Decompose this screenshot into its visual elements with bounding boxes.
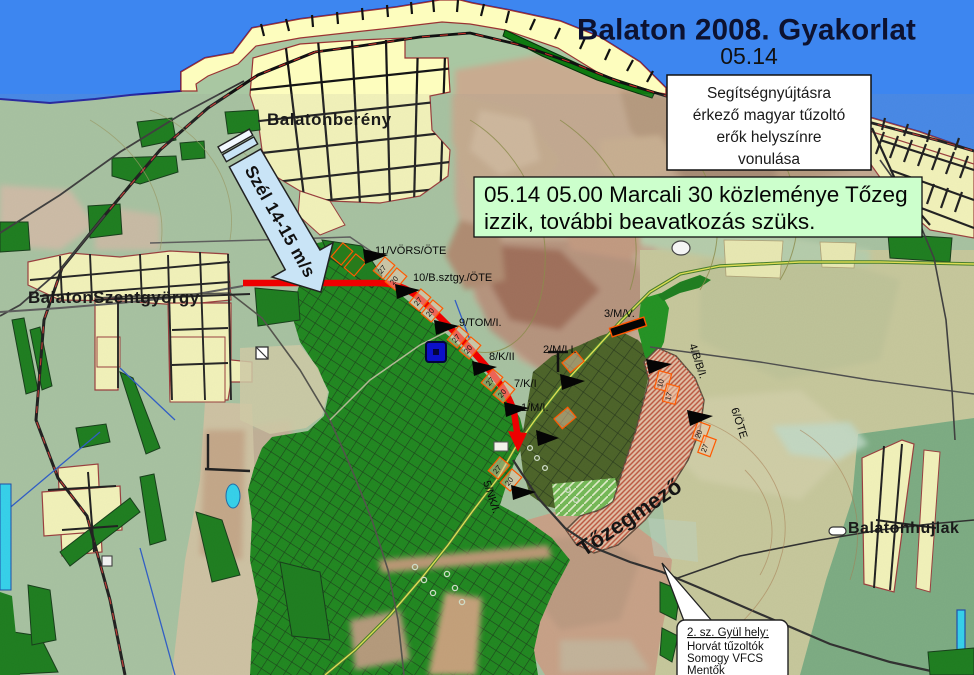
svg-text:Horvát tűzoltók: Horvát tűzoltók — [687, 641, 764, 653]
svg-text:7/K/I: 7/K/I — [514, 378, 537, 390]
svg-text:10/B.sztgy./ÖTE: 10/B.sztgy./ÖTE — [413, 272, 492, 284]
svg-text:vonulása: vonulása — [738, 151, 800, 168]
svg-text:Balaton 2008. Gyakorlat: Balaton 2008. Gyakorlat — [577, 14, 916, 47]
svg-text:Segítségnyújtásra: Segítségnyújtásra — [707, 85, 831, 102]
svg-text:BalatonSzentgyörgy: BalatonSzentgyörgy — [28, 288, 200, 307]
svg-text:Somogy VFCS: Somogy VFCS — [687, 653, 763, 665]
svg-text:Balatonberény: Balatonberény — [267, 110, 392, 129]
svg-text:3/M/V.: 3/M/V. — [604, 308, 635, 320]
svg-text:izzik, további beavatkozás szü: izzik, további beavatkozás szüks. — [484, 209, 815, 234]
svg-text:05.14 05.00 Marcali 30 közlemé: 05.14 05.00 Marcali 30 közleménye Tőzeg — [484, 182, 908, 207]
svg-text:9/TOM/I.: 9/TOM/I. — [459, 317, 502, 329]
svg-text:8/K/II: 8/K/II — [489, 351, 515, 363]
svg-text:Mentők: Mentők — [687, 665, 725, 675]
svg-text:érkező magyar tűzoltó: érkező magyar tűzoltó — [693, 107, 846, 124]
svg-text:11/VÖRS/ÖTE: 11/VÖRS/ÖTE — [375, 245, 446, 257]
svg-text:erők helyszínre: erők helyszínre — [716, 129, 821, 146]
svg-text:Balatonhujlak: Balatonhujlak — [848, 520, 959, 537]
svg-text:2/M/I I.: 2/M/I I. — [543, 344, 577, 356]
svg-text:05.14: 05.14 — [720, 43, 778, 69]
svg-text:2. sz. Gyül hely:: 2. sz. Gyül hely: — [687, 627, 769, 639]
svg-text:1/M/I.: 1/M/I. — [521, 402, 549, 414]
